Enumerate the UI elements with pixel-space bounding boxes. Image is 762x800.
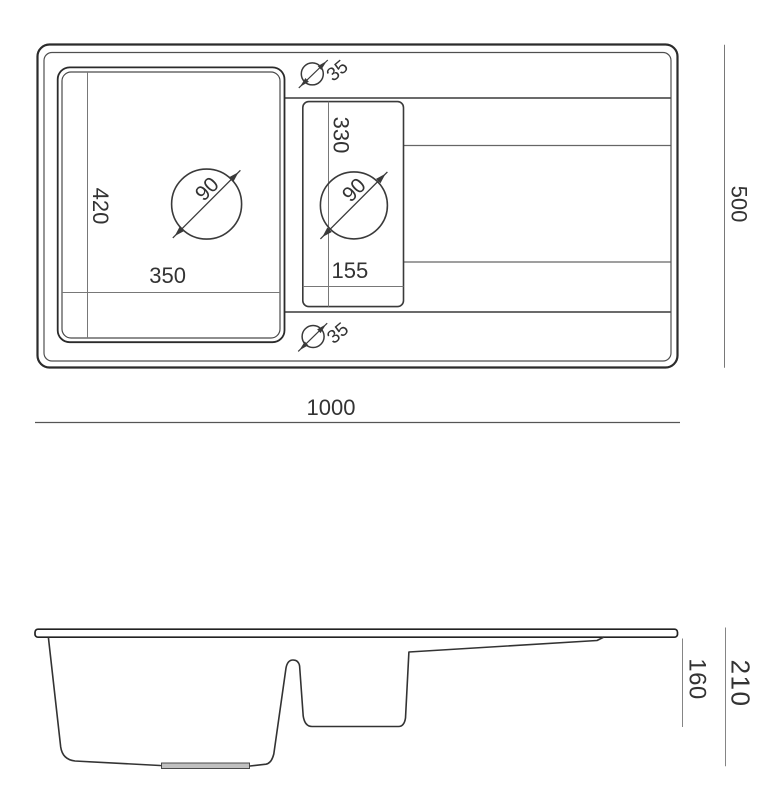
svg-text:210: 210 [726,660,756,708]
svg-text:420: 420 [88,188,113,225]
svg-text:160: 160 [684,658,711,700]
svg-text:155: 155 [332,258,369,283]
svg-text:1000: 1000 [307,395,356,420]
svg-text:90: 90 [191,173,224,206]
svg-text:35: 35 [323,319,353,349]
svg-text:350: 350 [149,263,186,288]
svg-text:330: 330 [329,117,354,154]
svg-text:500: 500 [727,186,752,223]
svg-text:90: 90 [338,174,371,207]
